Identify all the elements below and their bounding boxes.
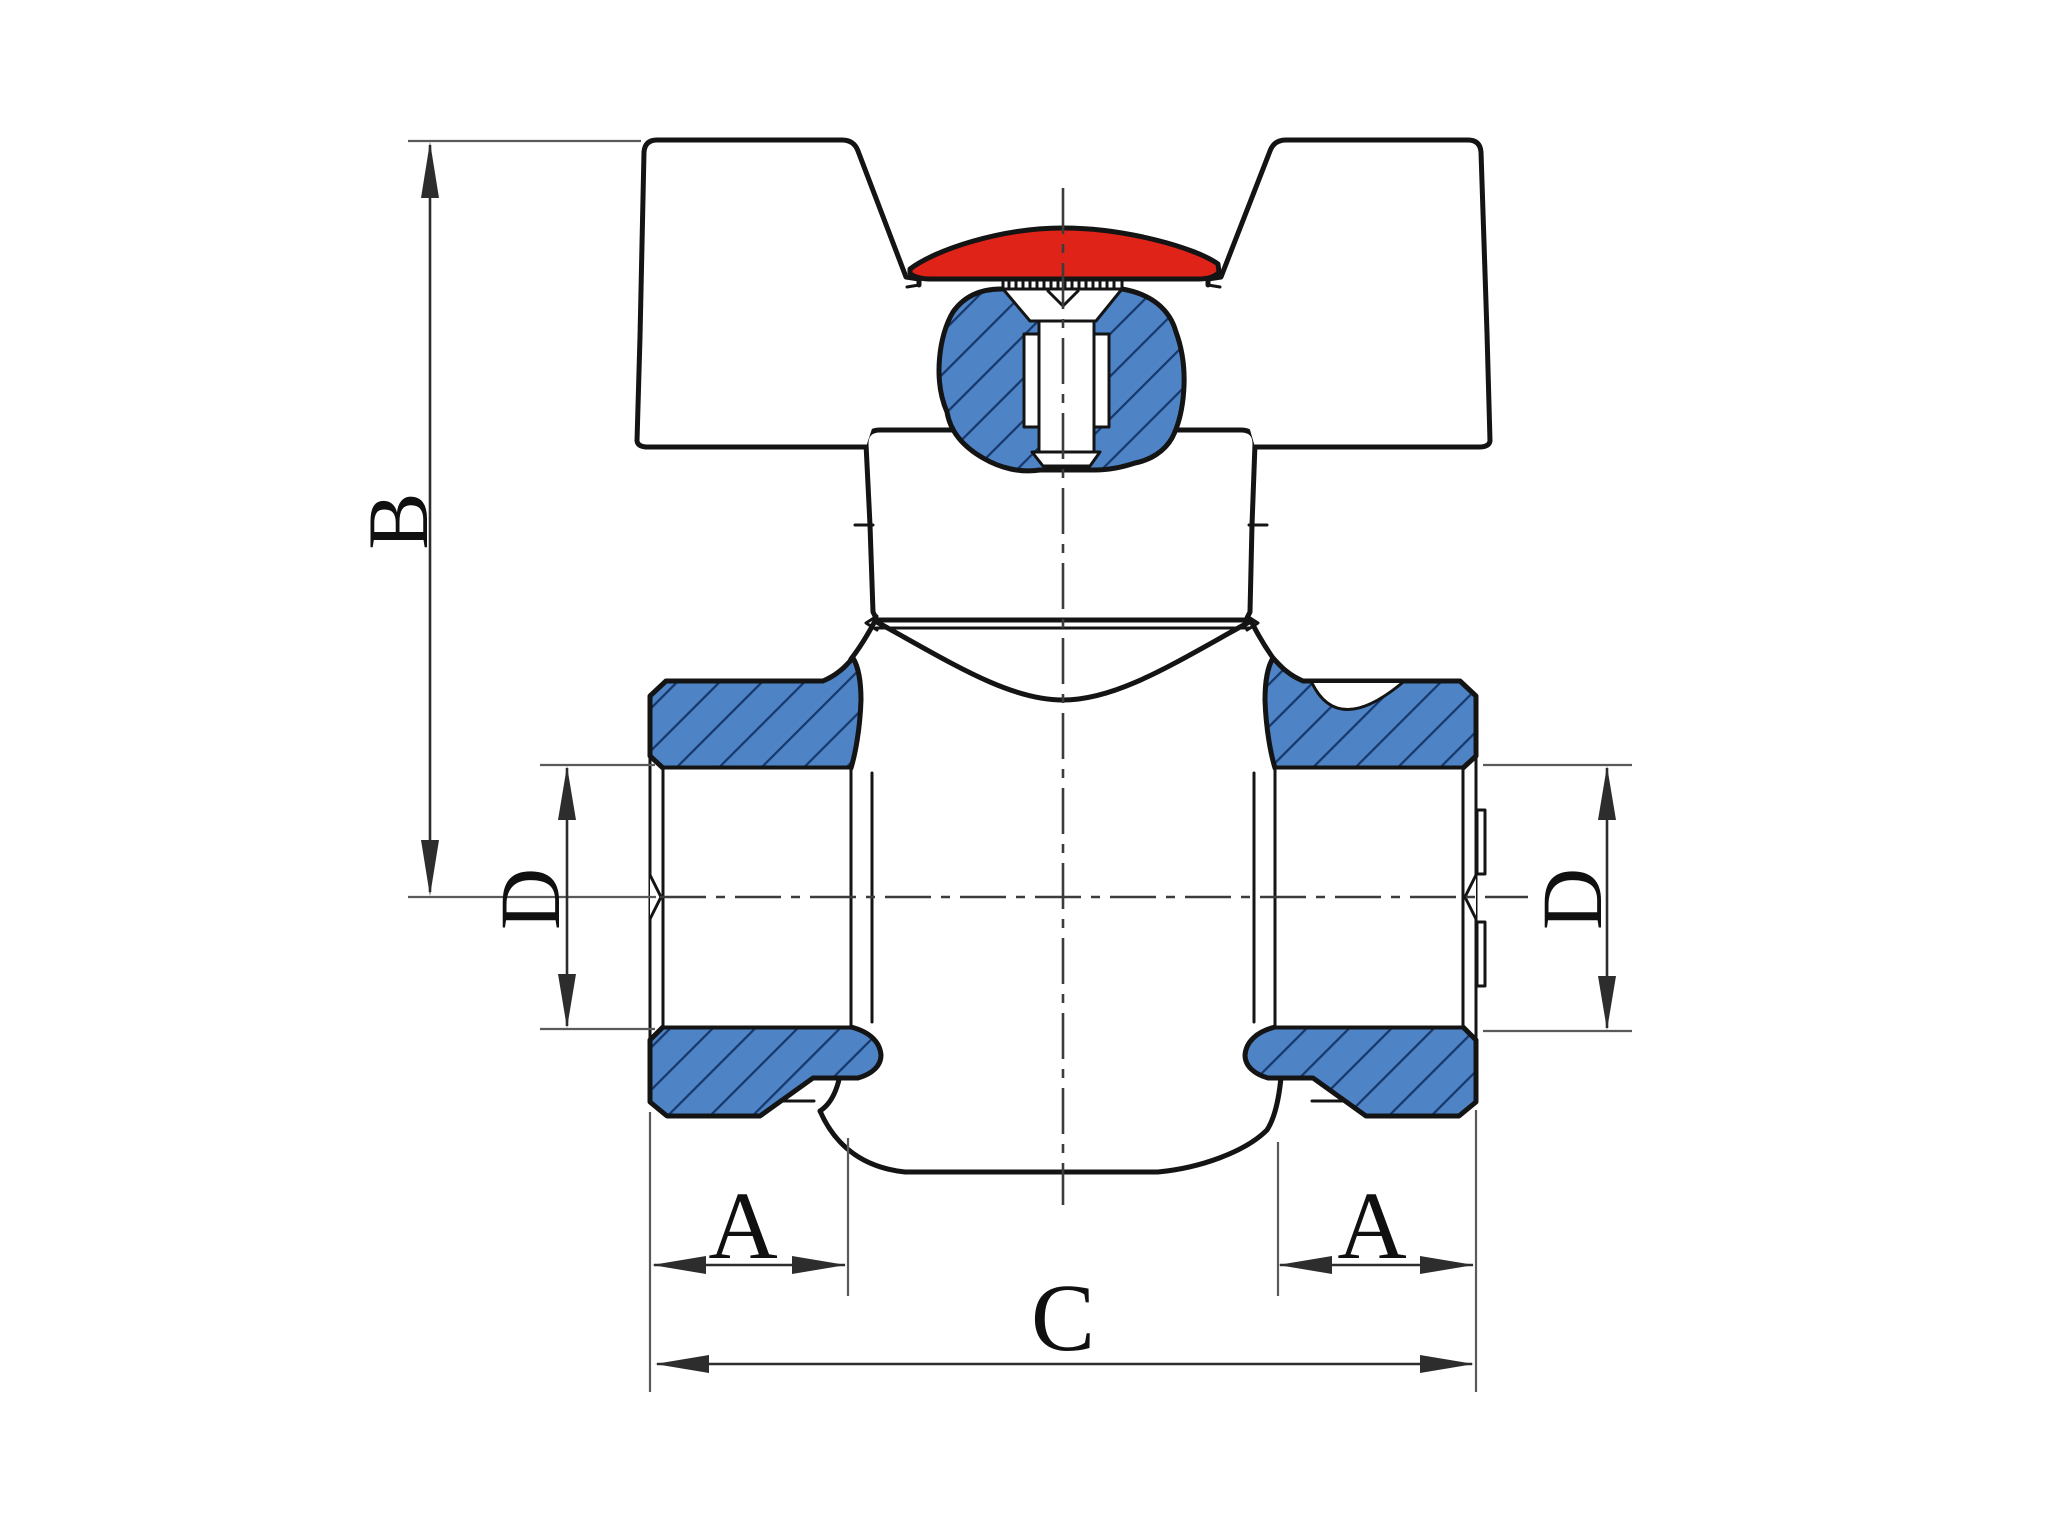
d-right-arrow-up: [1598, 766, 1616, 820]
handle-right-wing-fill: [1208, 140, 1490, 447]
ball-valve-section-drawing: B D D A A C: [0, 0, 2048, 1531]
d-left-arrow-down: [558, 974, 576, 1028]
right-port-tab-upper: [1477, 810, 1485, 874]
dimension-a-right: A: [1278, 1110, 1476, 1392]
a-left-label: A: [708, 1172, 777, 1279]
technical-drawing-page: B D D A A C: [0, 0, 2048, 1531]
b-label: B: [350, 492, 446, 549]
dimension-b: B: [350, 141, 656, 897]
b-arrow-down: [421, 840, 439, 896]
left-port-nut: [650, 658, 881, 1116]
b-arrow-up: [421, 142, 439, 198]
stem-packing-right: [1094, 334, 1109, 427]
stem-foot: [1032, 452, 1100, 466]
dimension-a-left: A: [650, 1112, 848, 1392]
a-right-arrow-left: [1278, 1256, 1332, 1274]
a-right-arrow-right: [1420, 1256, 1474, 1274]
handle-cap: [910, 228, 1219, 279]
d-right-arrow-down: [1598, 976, 1616, 1030]
stem-packing-left: [1024, 334, 1039, 427]
right-port-nut: [1245, 658, 1485, 1116]
left-port-top-section: [650, 658, 861, 768]
d-left-label: D: [482, 868, 578, 930]
d-right-label: D: [1524, 868, 1620, 930]
right-port-tab-lower: [1477, 922, 1485, 986]
valve-stem: [1039, 321, 1094, 452]
c-arrow-right: [1420, 1355, 1474, 1373]
handle-left-wing-fill: [637, 140, 919, 447]
d-left-arrow-up: [558, 766, 576, 820]
c-label: C: [1031, 1264, 1095, 1371]
a-left-arrow-right: [792, 1256, 846, 1274]
a-right-label: A: [1337, 1172, 1406, 1279]
c-arrow-left: [655, 1355, 709, 1373]
right-port-top-section: [1265, 658, 1476, 768]
a-left-arrow-left: [652, 1256, 706, 1274]
dimension-c: C: [655, 1264, 1474, 1373]
